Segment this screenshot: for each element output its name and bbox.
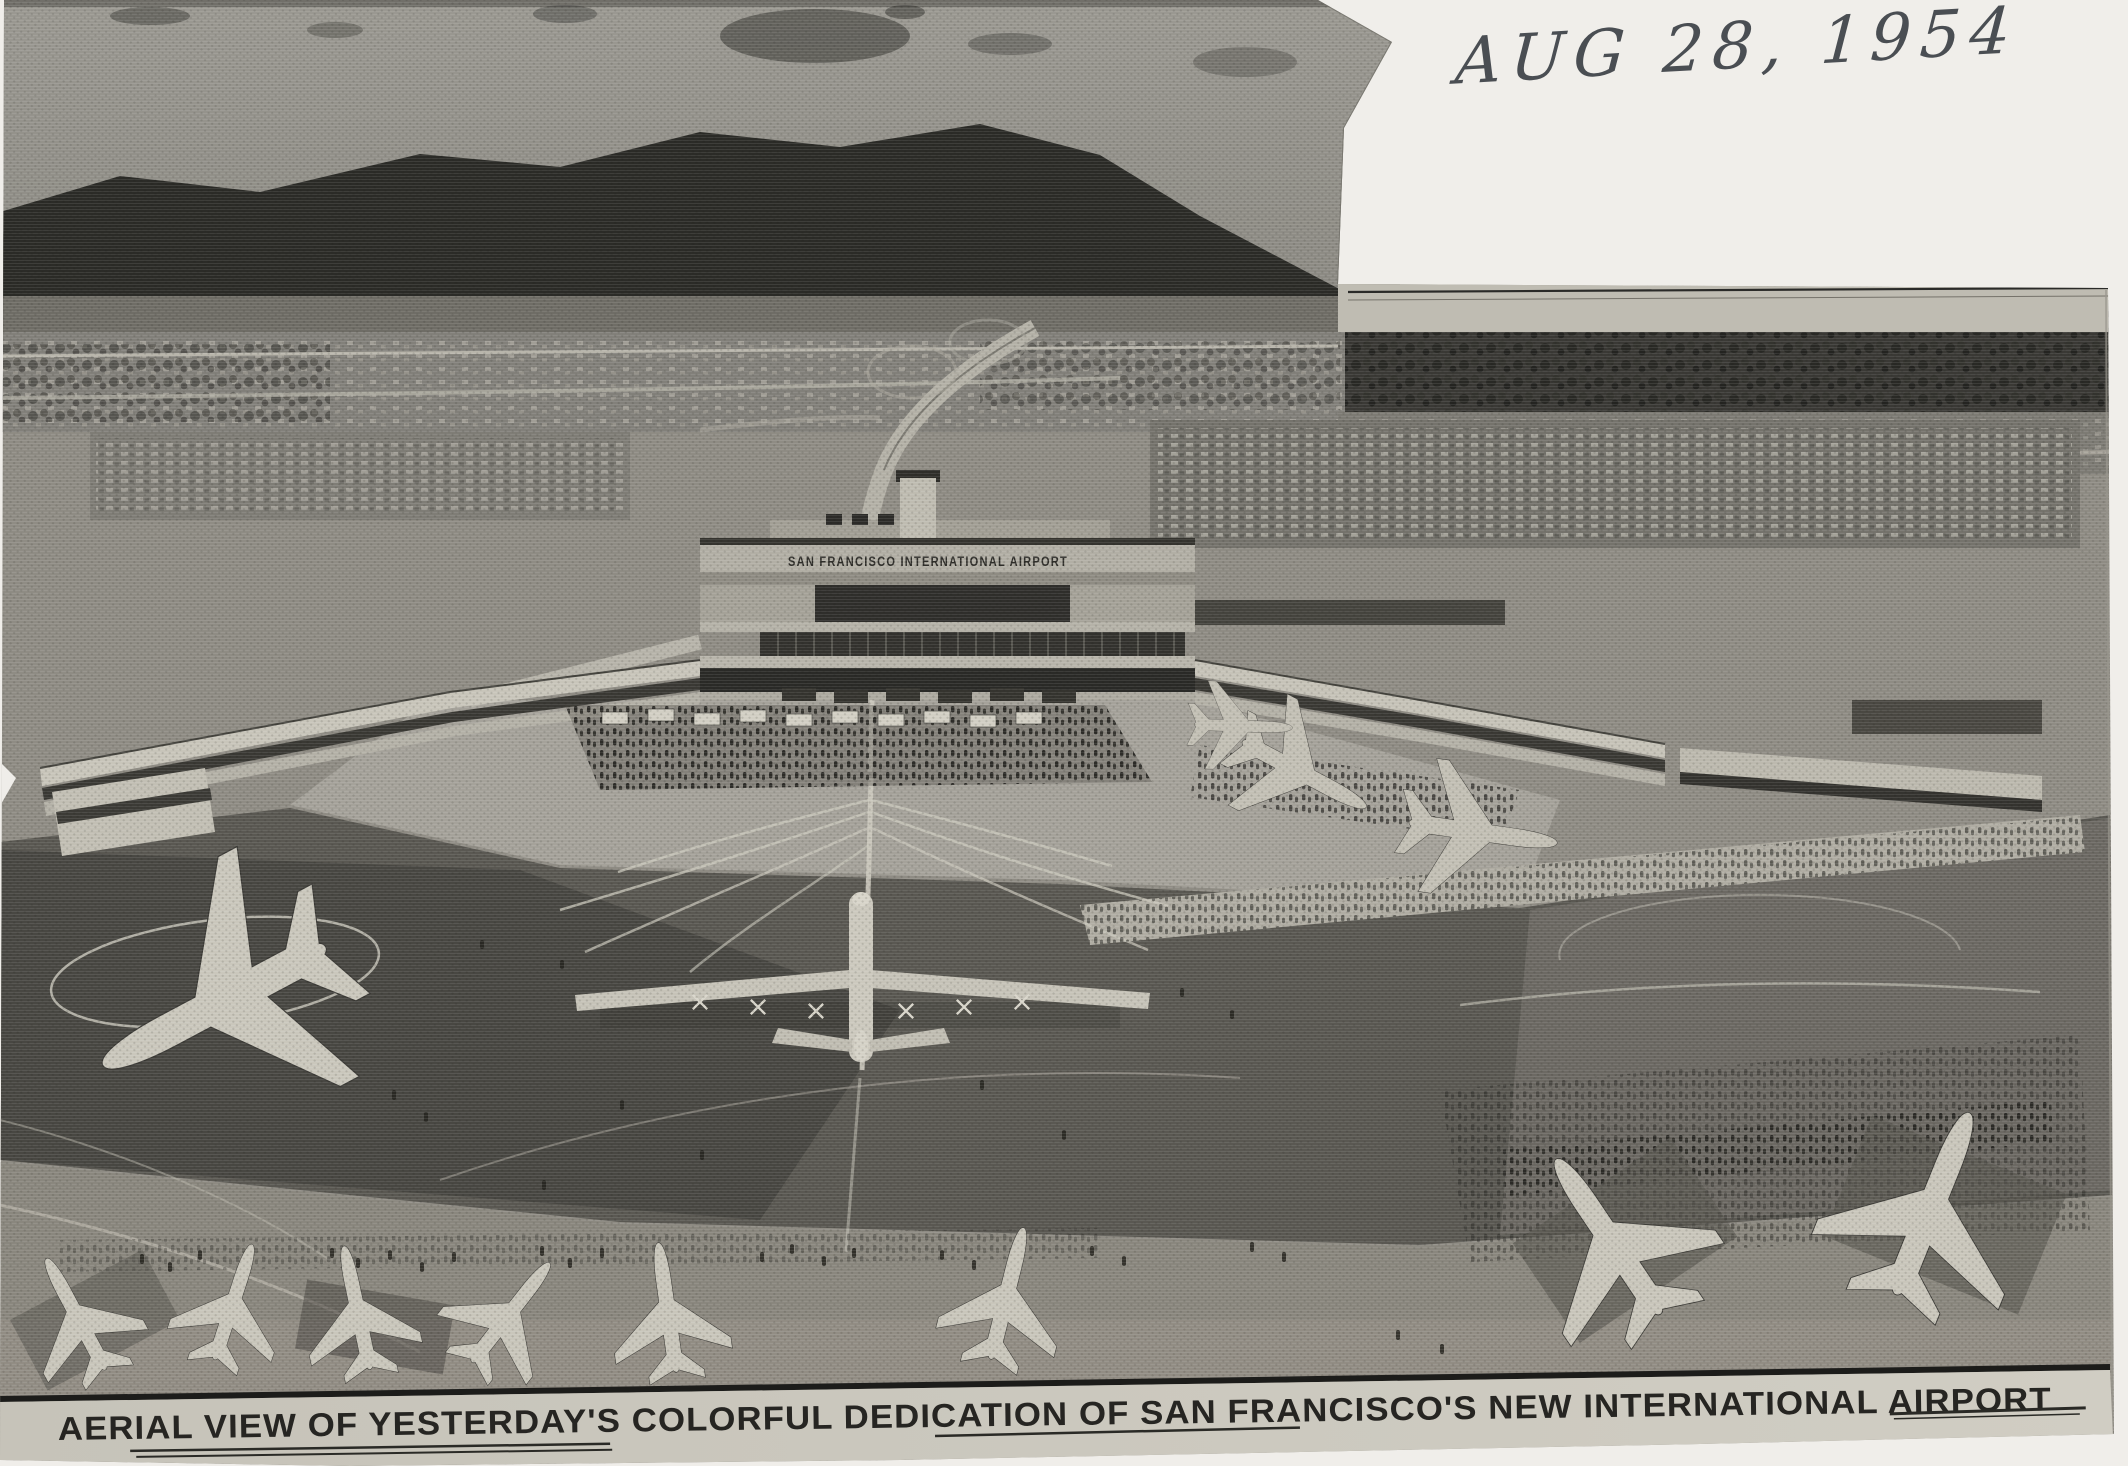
- clipping-photo: SAN FRANCISCO INTERNATIONAL AIRPORT: [0, 0, 2128, 1466]
- newspaper-clipping-scan: SAN FRANCISCO INTERNATIONAL AIRPORT: [0, 0, 2128, 1466]
- halftone-overlay: [0, 0, 2128, 1466]
- notch-margin: [1338, 284, 2114, 332]
